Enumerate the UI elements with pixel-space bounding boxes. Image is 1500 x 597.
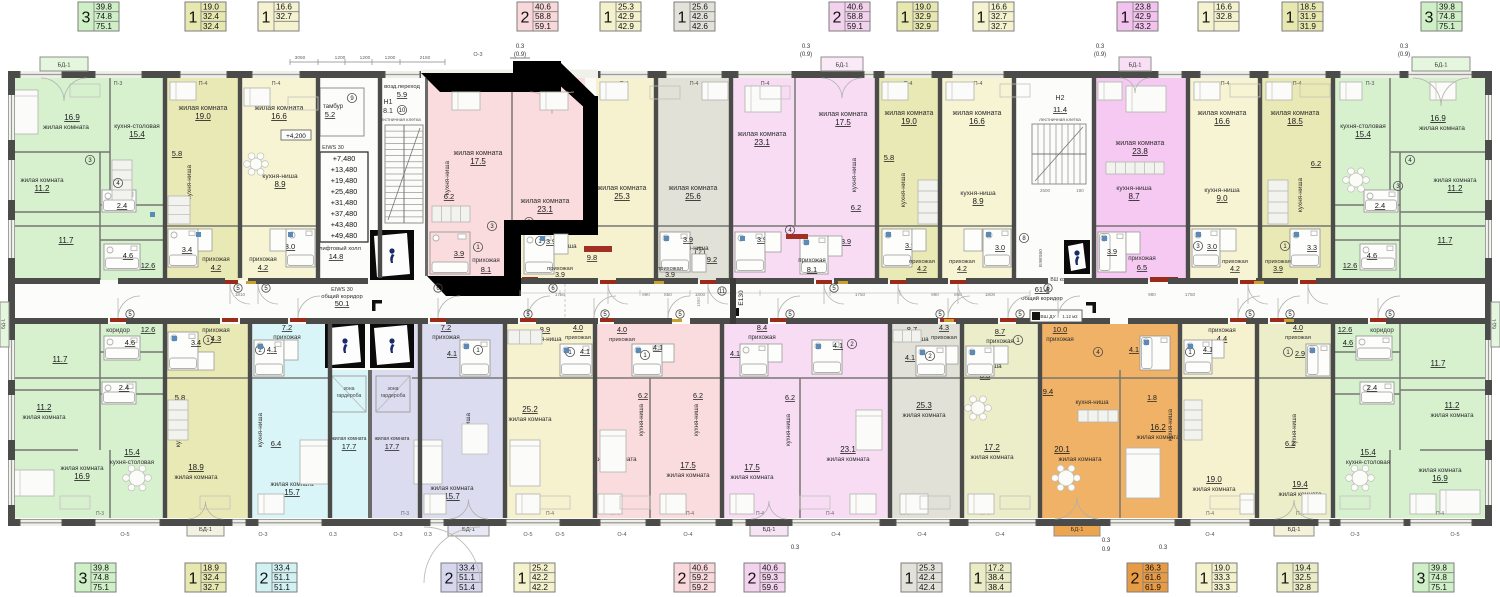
svg-text:П-4: П-4 xyxy=(272,81,281,87)
svg-text:прихожая: прихожая xyxy=(1265,259,1291,265)
svg-text:П-3: П-3 xyxy=(114,81,123,87)
svg-text:прихожая: прихожая xyxy=(1208,327,1236,334)
svg-text:25.6: 25.6 xyxy=(692,3,708,12)
svg-text:1: 1 xyxy=(974,571,983,588)
svg-text:БД-1: БД-1 xyxy=(763,527,776,533)
svg-text:16.9: 16.9 xyxy=(74,472,90,481)
svg-text:25.2: 25.2 xyxy=(532,564,548,573)
svg-text:61.9: 61.9 xyxy=(1145,583,1161,592)
svg-text:кухня-ниша: кухня-ниша xyxy=(1297,177,1304,212)
svg-text:(0.9): (0.9) xyxy=(800,52,812,58)
svg-text:39.8: 39.8 xyxy=(96,3,112,12)
svg-text:15.4: 15.4 xyxy=(1355,130,1371,139)
svg-text:4.6: 4.6 xyxy=(1367,251,1377,260)
svg-text:11.2: 11.2 xyxy=(35,184,51,193)
svg-text:1: 1 xyxy=(901,10,910,27)
svg-text:гардероба: гардероба xyxy=(381,393,406,399)
svg-text:4.0: 4.0 xyxy=(1293,323,1303,332)
svg-text:П-3: П-3 xyxy=(96,511,104,517)
svg-text:прихожая: прихожая xyxy=(202,327,230,334)
svg-text:33.4: 33.4 xyxy=(459,564,475,573)
svg-text:жилая комната: жилая комната xyxy=(60,465,104,472)
svg-text:EIWS 30: EIWS 30 xyxy=(331,287,353,293)
svg-text:17.5: 17.5 xyxy=(744,463,760,472)
svg-text:П-3: П-3 xyxy=(401,511,409,517)
svg-text:51.4: 51.4 xyxy=(459,583,475,592)
svg-text:61.6: 61.6 xyxy=(1145,573,1161,582)
svg-text:3: 3 xyxy=(1425,10,1434,27)
svg-text:2: 2 xyxy=(748,571,757,588)
svg-text:прихожая: прихожая xyxy=(949,259,975,265)
svg-text:П-4: П-4 xyxy=(199,81,208,87)
svg-text:25.3: 25.3 xyxy=(614,192,630,201)
svg-text:11.7: 11.7 xyxy=(1431,359,1447,368)
svg-text:1: 1 xyxy=(189,571,198,588)
svg-text:БД-1: БД-1 xyxy=(58,63,71,69)
svg-text:1200: 1200 xyxy=(360,55,371,61)
svg-text:8.4: 8.4 xyxy=(757,323,767,332)
svg-text:БД-1: БД-1 xyxy=(1071,527,1084,533)
svg-text:прихожая: прихожая xyxy=(748,334,776,341)
svg-text:59.6: 59.6 xyxy=(762,583,778,592)
svg-text:кухня-столовая: кухня-столовая xyxy=(114,123,160,130)
svg-text:4.2: 4.2 xyxy=(957,266,967,273)
svg-text:5.8: 5.8 xyxy=(884,153,894,162)
svg-text:74.8: 74.8 xyxy=(93,573,109,582)
svg-text:23.1: 23.1 xyxy=(840,445,856,454)
svg-text:E130: E130 xyxy=(738,290,745,306)
svg-text:39.8: 39.8 xyxy=(1431,564,1447,573)
svg-text:зона: зона xyxy=(344,386,355,392)
svg-text:кухня-ниша: кухня-ниша xyxy=(1204,187,1240,194)
svg-text:2: 2 xyxy=(833,10,842,27)
svg-text:19.0: 19.0 xyxy=(1206,475,1222,484)
svg-text:О-4: О-4 xyxy=(617,532,626,538)
svg-text:1: 1 xyxy=(262,10,271,27)
svg-text:БД-1: БД-1 xyxy=(1,318,6,329)
svg-text:3.0: 3.0 xyxy=(1207,242,1217,251)
svg-text:8.9: 8.9 xyxy=(274,180,286,189)
svg-text:59.2: 59.2 xyxy=(692,583,708,592)
svg-text:+37,480: +37,480 xyxy=(331,209,358,218)
svg-text:жилая комната: жилая комната xyxy=(1271,110,1320,117)
svg-text:жилая комната: жилая комната xyxy=(1198,110,1247,117)
svg-text:12.6: 12.6 xyxy=(141,261,156,270)
svg-text:4.0: 4.0 xyxy=(573,323,583,332)
svg-text:БД-1: БД-1 xyxy=(1435,63,1448,69)
svg-text:кухня-ниша: кухня-ниша xyxy=(851,157,858,192)
svg-text:4.3: 4.3 xyxy=(939,323,949,332)
svg-text:1: 1 xyxy=(977,10,986,27)
svg-text:3.9: 3.9 xyxy=(454,249,464,258)
svg-text:17.5: 17.5 xyxy=(835,118,851,127)
svg-text:2.4: 2.4 xyxy=(1375,201,1385,210)
svg-text:10.0: 10.0 xyxy=(1053,325,1068,334)
svg-text:18.5: 18.5 xyxy=(1287,117,1303,126)
svg-text:прихожая: прихожая xyxy=(1285,335,1311,341)
svg-text:жилая комната: жилая комната xyxy=(1419,125,1465,132)
svg-text:П-4: П-4 xyxy=(1221,81,1230,87)
svg-text:16.6: 16.6 xyxy=(276,3,292,12)
svg-text:15.4: 15.4 xyxy=(124,448,140,457)
svg-text:жилая комната: жилая комната xyxy=(953,110,1002,117)
svg-text:коридор: коридор xyxy=(1370,327,1394,334)
svg-text:3.9: 3.9 xyxy=(1273,266,1283,273)
svg-text:4.1: 4.1 xyxy=(905,353,915,362)
svg-text:9.4: 9.4 xyxy=(1043,387,1053,396)
svg-text:1: 1 xyxy=(518,571,527,588)
svg-text:12.6: 12.6 xyxy=(1338,325,1353,334)
svg-text:23.8: 23.8 xyxy=(1135,3,1151,12)
svg-text:кухня-ниша: кухня-ниша xyxy=(694,403,700,436)
svg-text:18.9: 18.9 xyxy=(188,463,204,472)
svg-text:жилая комната: жилая комната xyxy=(43,124,89,131)
svg-text:жилая комната: жилая комната xyxy=(179,105,228,112)
svg-text:жилая комната: жилая комната xyxy=(730,474,774,481)
svg-text:3.0: 3.0 xyxy=(995,243,1005,252)
svg-text:4.1: 4.1 xyxy=(833,341,843,350)
svg-text:59.3: 59.3 xyxy=(762,573,778,582)
svg-text:12.6: 12.6 xyxy=(141,325,156,334)
svg-text:лестничная клетка: лестничная клетка xyxy=(379,118,421,123)
svg-text:42.9: 42.9 xyxy=(618,22,634,31)
svg-text:лифтовый холл: лифтовый холл xyxy=(319,245,361,252)
svg-text:жилая комната: жилая комната xyxy=(1192,486,1236,493)
svg-text:2: 2 xyxy=(260,571,269,588)
svg-text:+31,480: +31,480 xyxy=(331,198,358,207)
svg-text:42.9: 42.9 xyxy=(618,12,634,21)
svg-text:О-4: О-4 xyxy=(1205,532,1214,538)
svg-text:74.8: 74.8 xyxy=(1439,12,1455,21)
svg-text:25.3: 25.3 xyxy=(916,401,932,410)
svg-text:42.6: 42.6 xyxy=(692,22,708,31)
svg-text:32.4: 32.4 xyxy=(203,573,219,582)
svg-text:42.9: 42.9 xyxy=(1135,12,1151,21)
svg-text:3.9: 3.9 xyxy=(841,237,851,246)
svg-text:жилая комната: жилая комната xyxy=(669,185,718,192)
svg-text:40.6: 40.6 xyxy=(535,3,551,12)
svg-text:кухня-ниша: кухня-ниша xyxy=(262,173,298,180)
svg-text:2: 2 xyxy=(1131,571,1140,588)
svg-text:0.3: 0.3 xyxy=(1102,538,1111,544)
svg-text:6.2: 6.2 xyxy=(638,391,648,400)
svg-text:32.9: 32.9 xyxy=(915,12,931,21)
svg-text:+4,200: +4,200 xyxy=(286,133,306,140)
svg-text:16.6: 16.6 xyxy=(271,112,287,121)
svg-text:О-5: О-5 xyxy=(523,532,532,538)
svg-text:жилая комната: жилая комната xyxy=(819,111,868,118)
svg-text:1: 1 xyxy=(604,10,613,27)
svg-text:кухня-столовая: кухня-столовая xyxy=(1346,459,1390,466)
svg-text:23.8: 23.8 xyxy=(1132,147,1148,156)
svg-text:2: 2 xyxy=(445,571,454,588)
svg-text:6.2: 6.2 xyxy=(693,391,703,400)
svg-text:6.2: 6.2 xyxy=(1285,439,1295,448)
svg-text:19.0: 19.0 xyxy=(901,117,917,126)
svg-text:4.2: 4.2 xyxy=(1230,266,1240,273)
svg-text:16.6: 16.6 xyxy=(991,3,1007,12)
svg-text:жилая комната: жилая комната xyxy=(666,472,710,479)
svg-text:1.8: 1.8 xyxy=(1147,395,1157,402)
svg-text:О-3: О-3 xyxy=(473,52,482,58)
svg-text:3: 3 xyxy=(79,571,88,588)
svg-text:4.3: 4.3 xyxy=(211,334,221,343)
svg-text:H2: H2 xyxy=(1056,95,1065,102)
svg-text:жилая комната: жилая комната xyxy=(22,414,66,421)
svg-text:31.9: 31.9 xyxy=(1300,22,1316,31)
svg-text:(0.9): (0.9) xyxy=(1094,52,1106,58)
svg-text:74.8: 74.8 xyxy=(96,12,112,21)
svg-text:59.1: 59.1 xyxy=(847,22,863,31)
svg-text:0.3: 0.3 xyxy=(802,44,811,50)
svg-text:51.1: 51.1 xyxy=(274,573,290,582)
svg-text:1: 1 xyxy=(189,10,198,27)
svg-text:прихожая: прихожая xyxy=(432,334,460,341)
svg-text:кухня-ниша: кухня-ниша xyxy=(786,413,792,446)
svg-text:7.2: 7.2 xyxy=(441,323,451,332)
svg-text:жилая комната: жилая комната xyxy=(826,456,870,463)
svg-text:4.2: 4.2 xyxy=(917,266,927,273)
svg-text:33.3: 33.3 xyxy=(1214,583,1230,592)
svg-text:43.2: 43.2 xyxy=(1135,22,1151,31)
svg-text:25.2: 25.2 xyxy=(522,405,538,414)
svg-text:8.1: 8.1 xyxy=(383,108,393,115)
svg-text:EIWS60: EIWS60 xyxy=(1038,249,1044,267)
svg-text:16.2: 16.2 xyxy=(1150,423,1166,432)
svg-text:1200: 1200 xyxy=(385,55,396,61)
svg-text:17.2: 17.2 xyxy=(984,443,1000,452)
svg-text:38.4: 38.4 xyxy=(988,583,1004,592)
svg-text:1650: 1650 xyxy=(696,297,701,307)
svg-text:180: 180 xyxy=(1076,188,1084,193)
svg-text:1: 1 xyxy=(1286,10,1295,27)
svg-text:16.6: 16.6 xyxy=(1216,3,1232,12)
svg-text:51.1: 51.1 xyxy=(459,573,475,582)
svg-text:жилая комната: жилая комната xyxy=(454,150,503,157)
svg-text:980: 980 xyxy=(1148,292,1156,297)
svg-text:58.8: 58.8 xyxy=(847,12,863,21)
svg-text:32.7: 32.7 xyxy=(276,12,292,21)
svg-text:жилая комната: жилая комната xyxy=(738,131,787,138)
svg-text:8.7: 8.7 xyxy=(995,327,1005,336)
svg-text:зона: зона xyxy=(388,386,399,392)
svg-text:1200: 1200 xyxy=(335,55,346,61)
svg-text:0.3: 0.3 xyxy=(1096,44,1105,50)
svg-text:0.3: 0.3 xyxy=(329,532,337,538)
svg-text:кухня-ниша: кухня-ниша xyxy=(1168,408,1174,441)
svg-text:кухня-столовая: кухня-столовая xyxy=(1340,123,1386,130)
svg-text:+19,480: +19,480 xyxy=(331,176,358,185)
svg-text:(0.9): (0.9) xyxy=(1398,52,1410,58)
svg-text:40.6: 40.6 xyxy=(762,564,778,573)
svg-text:лестничная клетка: лестничная клетка xyxy=(1039,118,1081,123)
svg-text:гардероба: гардероба xyxy=(337,393,362,399)
svg-text:6.2: 6.2 xyxy=(1311,159,1321,168)
svg-text:О-5: О-5 xyxy=(1450,532,1459,538)
svg-text:БД-1: БД-1 xyxy=(1492,318,1497,329)
svg-text:36.3: 36.3 xyxy=(1145,564,1161,573)
svg-text:кухня-ниша: кухня-ниша xyxy=(900,172,907,207)
svg-text:59.1: 59.1 xyxy=(535,22,551,31)
svg-text:74.8: 74.8 xyxy=(1431,573,1447,582)
svg-text:1750: 1750 xyxy=(1185,292,1196,297)
svg-text:0.3: 0.3 xyxy=(424,532,432,538)
svg-text:5.2: 5.2 xyxy=(325,110,335,119)
svg-text:4.1: 4.1 xyxy=(447,349,457,358)
svg-text:17.5: 17.5 xyxy=(680,461,696,470)
svg-text:кухня-ниша: кухня-ниша xyxy=(186,164,193,199)
svg-text:2: 2 xyxy=(521,10,530,27)
svg-text:1810: 1810 xyxy=(235,292,246,297)
svg-text:42.4: 42.4 xyxy=(919,573,935,582)
svg-text:11.7: 11.7 xyxy=(59,236,75,245)
svg-text:H1: H1 xyxy=(384,99,393,106)
svg-text:9.0: 9.0 xyxy=(1216,194,1228,203)
svg-text:О-5: О-5 xyxy=(555,532,564,538)
svg-text:23.1: 23.1 xyxy=(754,138,770,147)
svg-text:0.9: 0.9 xyxy=(1102,547,1111,553)
svg-text:15.7: 15.7 xyxy=(444,492,460,501)
svg-text:ВШ ДУ: ВШ ДУ xyxy=(1040,314,1056,320)
svg-text:2.4: 2.4 xyxy=(117,201,127,210)
svg-text:6.2: 6.2 xyxy=(444,192,454,201)
svg-text:БД-1: БД-1 xyxy=(1288,527,1301,533)
svg-text:15.4: 15.4 xyxy=(129,130,145,139)
svg-text:БД-1: БД-1 xyxy=(1129,63,1142,69)
svg-text:жилая комната: жилая комната xyxy=(174,474,218,481)
svg-text:40.6: 40.6 xyxy=(847,3,863,12)
svg-text:жилая комната: жилая комната xyxy=(1116,140,1165,147)
svg-text:11.2: 11.2 xyxy=(1445,401,1461,410)
svg-text:8.9: 8.9 xyxy=(972,197,984,206)
svg-text:+7,480: +7,480 xyxy=(333,154,356,163)
svg-text:прихожая: прихожая xyxy=(565,335,591,341)
svg-text:жилая комната: жилая комната xyxy=(598,185,647,192)
svg-text:8.7: 8.7 xyxy=(1128,192,1140,201)
svg-text:9.2: 9.2 xyxy=(707,255,717,264)
svg-text:32.4: 32.4 xyxy=(203,22,219,31)
svg-text:16.9: 16.9 xyxy=(1432,474,1448,483)
svg-text:жилая комната: жилая комната xyxy=(20,177,64,184)
svg-text:19.0: 19.0 xyxy=(203,3,219,12)
svg-text:4.1: 4.1 xyxy=(580,347,590,356)
svg-text:жилая комната: жилая комната xyxy=(1418,467,1462,474)
svg-text:1: 1 xyxy=(905,571,914,588)
svg-text:9.8: 9.8 xyxy=(587,253,597,262)
svg-text:32.8: 32.8 xyxy=(1216,12,1232,21)
svg-text:О-3: О-3 xyxy=(258,532,267,538)
svg-text:7.2: 7.2 xyxy=(282,323,292,332)
svg-text:кухня-ниша: кухня-ниша xyxy=(444,160,451,195)
svg-text:19.4: 19.4 xyxy=(1292,480,1308,489)
svg-text:32.5: 32.5 xyxy=(1295,573,1311,582)
svg-text:19.0: 19.0 xyxy=(915,3,931,12)
svg-text:39.8: 39.8 xyxy=(93,564,109,573)
svg-text:жилая комната: жилая комната xyxy=(521,198,570,205)
svg-text:16.9: 16.9 xyxy=(1430,114,1446,123)
svg-text:10: 10 xyxy=(399,108,406,114)
svg-text:19.0: 19.0 xyxy=(195,112,211,121)
svg-text:прихожая: прихожая xyxy=(1222,259,1248,265)
svg-text:8.1: 8.1 xyxy=(481,265,491,274)
svg-text:51.1: 51.1 xyxy=(274,583,290,592)
svg-text:жилая комната: жилая комната xyxy=(885,110,934,117)
svg-text:6.4: 6.4 xyxy=(271,439,281,448)
svg-text:+43,480: +43,480 xyxy=(331,220,358,229)
svg-text:3.9: 3.9 xyxy=(683,235,693,244)
svg-text:38.4: 38.4 xyxy=(988,573,1004,582)
svg-text:5.8: 5.8 xyxy=(172,149,182,158)
svg-text:3050: 3050 xyxy=(295,55,306,61)
svg-text:42.2: 42.2 xyxy=(532,583,548,592)
svg-text:3: 3 xyxy=(1417,571,1426,588)
svg-text:жилая комната: жилая комната xyxy=(1058,456,1102,463)
svg-text:8.1: 8.1 xyxy=(807,265,817,274)
svg-text:32.9: 32.9 xyxy=(915,22,931,31)
svg-text:32.7: 32.7 xyxy=(991,12,1007,21)
svg-text:25.6: 25.6 xyxy=(685,192,701,201)
svg-text:0.3: 0.3 xyxy=(1400,44,1409,50)
svg-text:П-4: П-4 xyxy=(690,81,699,87)
svg-text:50.1: 50.1 xyxy=(335,299,350,308)
svg-text:прихожая: прихожая xyxy=(249,256,277,263)
svg-text:4.2: 4.2 xyxy=(211,263,221,272)
svg-text:25.3: 25.3 xyxy=(618,3,634,12)
svg-text:+49,480: +49,480 xyxy=(331,231,358,240)
svg-text:П-4: П-4 xyxy=(1206,511,1214,517)
svg-text:жилая комната: жилая комната xyxy=(970,454,1014,461)
svg-text:жилая комната: жилая комната xyxy=(902,412,946,419)
svg-text:4.1: 4.1 xyxy=(730,349,740,358)
svg-text:тамбур: тамбур xyxy=(323,103,344,110)
svg-text:О-4: О-4 xyxy=(683,532,692,538)
svg-text:75.1: 75.1 xyxy=(1431,583,1447,592)
svg-text:19.0: 19.0 xyxy=(1214,564,1230,573)
svg-text:2.9: 2.9 xyxy=(1295,349,1305,358)
svg-text:17.5: 17.5 xyxy=(470,157,486,166)
svg-text:прихожая: прихожая xyxy=(909,259,935,265)
svg-text:1: 1 xyxy=(1121,10,1130,27)
svg-text:2: 2 xyxy=(678,571,687,588)
svg-text:1: 1 xyxy=(678,10,687,27)
svg-text:П-3: П-3 xyxy=(1366,81,1375,87)
svg-text:4.1: 4.1 xyxy=(1203,345,1213,354)
svg-text:О-4: О-4 xyxy=(995,532,1004,538)
svg-text:0.3: 0.3 xyxy=(516,44,525,50)
svg-text:коридор: коридор xyxy=(106,327,130,334)
svg-text:О-4: О-4 xyxy=(831,532,840,538)
svg-text:32.8: 32.8 xyxy=(1295,583,1311,592)
svg-text:32.7: 32.7 xyxy=(203,583,219,592)
svg-text:4.6: 4.6 xyxy=(1343,338,1353,347)
svg-text:прихожая: прихожая xyxy=(202,256,230,263)
svg-text:75.1: 75.1 xyxy=(1439,22,1455,31)
svg-text:(0.9): (0.9) xyxy=(514,52,526,58)
svg-text:2150: 2150 xyxy=(420,55,431,61)
svg-text:жилая комната: жилая комната xyxy=(1430,412,1474,419)
svg-text:прихожая: прихожая xyxy=(1046,336,1074,343)
svg-text:БД-1: БД-1 xyxy=(199,527,212,533)
svg-text:42.4: 42.4 xyxy=(919,583,935,592)
svg-text:прихожая: прихожая xyxy=(609,337,635,343)
svg-text:кухня-ниша: кухня-ниша xyxy=(639,403,645,436)
svg-text:П-4: П-4 xyxy=(686,511,694,517)
svg-text:11.7: 11.7 xyxy=(1438,236,1454,245)
svg-text:42.2: 42.2 xyxy=(532,573,548,582)
svg-text:4.1: 4.1 xyxy=(653,343,663,352)
svg-text:прихожая: прихожая xyxy=(472,257,500,264)
svg-text:23.1: 23.1 xyxy=(537,205,553,214)
